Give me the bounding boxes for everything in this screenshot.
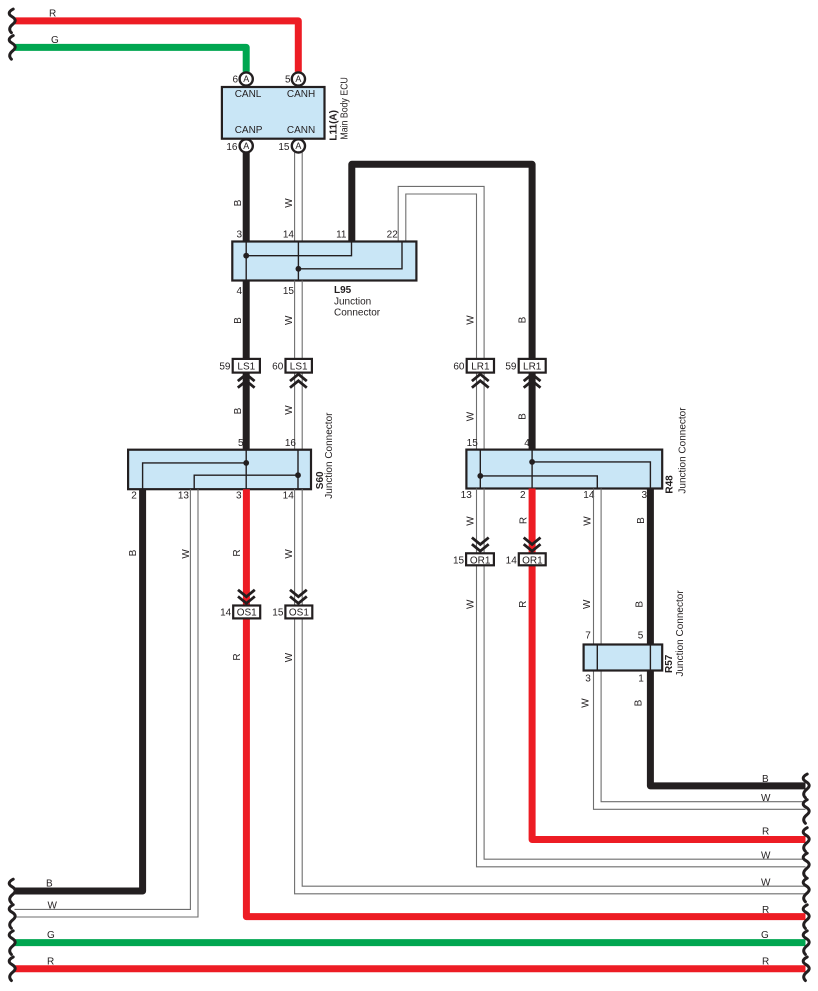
- svg-text:R: R: [518, 601, 529, 608]
- svg-text:15: 15: [467, 438, 479, 449]
- svg-text:15: 15: [283, 286, 295, 297]
- svg-text:CANL: CANL: [235, 89, 262, 100]
- svg-text:5: 5: [285, 75, 291, 86]
- svg-text:W: W: [181, 549, 192, 559]
- svg-text:OR1: OR1: [470, 556, 491, 567]
- svg-text:R: R: [762, 826, 769, 837]
- svg-text:R: R: [232, 653, 243, 660]
- svg-text:1: 1: [638, 674, 644, 685]
- svg-text:Connector: Connector: [334, 308, 381, 319]
- svg-text:B: B: [233, 317, 244, 324]
- svg-text:R: R: [232, 549, 243, 556]
- svg-text:G: G: [47, 930, 55, 941]
- svg-text:W: W: [582, 599, 593, 609]
- svg-text:14: 14: [283, 490, 295, 501]
- svg-text:A: A: [243, 74, 249, 84]
- svg-text:59: 59: [505, 361, 517, 372]
- svg-text:A: A: [295, 141, 301, 151]
- svg-text:W: W: [466, 599, 477, 609]
- svg-text:CANN: CANN: [287, 125, 315, 136]
- svg-text:R: R: [762, 905, 769, 916]
- svg-text:B: B: [762, 774, 769, 785]
- svg-text:Junction Connector: Junction Connector: [675, 590, 686, 677]
- svg-text:Junction Connector: Junction Connector: [678, 407, 689, 494]
- svg-text:W: W: [581, 698, 592, 708]
- svg-text:14: 14: [506, 556, 518, 567]
- svg-text:W: W: [466, 315, 477, 325]
- svg-text:14: 14: [283, 230, 295, 241]
- svg-text:W: W: [284, 405, 295, 415]
- svg-text:Junction: Junction: [334, 297, 371, 308]
- svg-text:LR1: LR1: [471, 361, 490, 372]
- svg-text:B: B: [518, 316, 529, 323]
- svg-text:LR1: LR1: [523, 361, 542, 372]
- svg-text:A: A: [295, 74, 301, 84]
- svg-text:R57: R57: [664, 654, 675, 673]
- svg-text:14: 14: [220, 608, 232, 619]
- svg-text:R: R: [49, 8, 56, 19]
- svg-text:B: B: [634, 699, 645, 706]
- svg-text:W: W: [48, 901, 58, 912]
- svg-text:3: 3: [236, 230, 242, 241]
- svg-text:L95: L95: [334, 285, 352, 296]
- svg-text:W: W: [761, 793, 771, 804]
- svg-text:B: B: [635, 601, 646, 608]
- svg-text:2: 2: [520, 490, 526, 501]
- svg-text:LS1: LS1: [237, 361, 255, 372]
- svg-text:B: B: [518, 413, 529, 420]
- svg-text:LS1: LS1: [290, 361, 308, 372]
- svg-text:3: 3: [585, 674, 591, 685]
- svg-text:60: 60: [272, 361, 284, 372]
- svg-text:R48: R48: [664, 475, 675, 494]
- svg-text:3: 3: [236, 490, 242, 501]
- svg-text:15: 15: [272, 608, 284, 619]
- svg-text:W: W: [761, 878, 771, 889]
- svg-text:W: W: [284, 652, 295, 662]
- svg-text:W: W: [284, 315, 295, 325]
- svg-text:G: G: [51, 35, 59, 46]
- svg-text:15: 15: [278, 142, 290, 153]
- svg-text:13: 13: [461, 490, 473, 501]
- svg-text:Junction Connector: Junction Connector: [324, 412, 335, 499]
- svg-text:22: 22: [387, 230, 399, 241]
- svg-text:R: R: [47, 956, 54, 967]
- svg-text:13: 13: [178, 490, 190, 501]
- svg-text:7: 7: [585, 631, 591, 642]
- svg-text:4: 4: [524, 438, 530, 449]
- svg-text:3: 3: [641, 490, 647, 501]
- svg-text:W: W: [582, 516, 593, 526]
- svg-text:Main Body ECU: Main Body ECU: [340, 77, 351, 140]
- svg-text:6: 6: [232, 75, 238, 86]
- svg-text:W: W: [466, 411, 477, 421]
- svg-text:CANH: CANH: [287, 89, 315, 100]
- svg-text:16: 16: [226, 142, 238, 153]
- svg-text:2: 2: [131, 490, 137, 501]
- svg-text:B: B: [233, 199, 244, 206]
- svg-text:A: A: [243, 141, 249, 151]
- svg-text:B: B: [233, 407, 244, 414]
- svg-text:15: 15: [453, 556, 465, 567]
- svg-text:OS1: OS1: [289, 608, 309, 619]
- svg-text:W: W: [284, 549, 295, 559]
- svg-text:W: W: [761, 851, 771, 862]
- svg-text:W: W: [466, 516, 477, 526]
- svg-text:5: 5: [638, 631, 644, 642]
- svg-text:4: 4: [236, 286, 242, 297]
- svg-text:5: 5: [238, 438, 244, 449]
- svg-text:11: 11: [336, 230, 347, 241]
- svg-text:R: R: [762, 956, 769, 967]
- svg-text:B: B: [46, 878, 53, 889]
- svg-text:OS1: OS1: [237, 608, 257, 619]
- svg-text:CANP: CANP: [235, 125, 263, 136]
- svg-text:59: 59: [219, 361, 231, 372]
- svg-text:W: W: [284, 198, 295, 208]
- svg-text:16: 16: [285, 438, 297, 449]
- svg-text:R: R: [519, 517, 530, 524]
- svg-text:B: B: [128, 549, 139, 556]
- svg-text:G: G: [761, 930, 769, 941]
- svg-text:60: 60: [453, 361, 465, 372]
- svg-text:OR1: OR1: [522, 556, 543, 567]
- svg-text:L11(A): L11(A): [329, 110, 340, 141]
- svg-text:B: B: [636, 517, 647, 524]
